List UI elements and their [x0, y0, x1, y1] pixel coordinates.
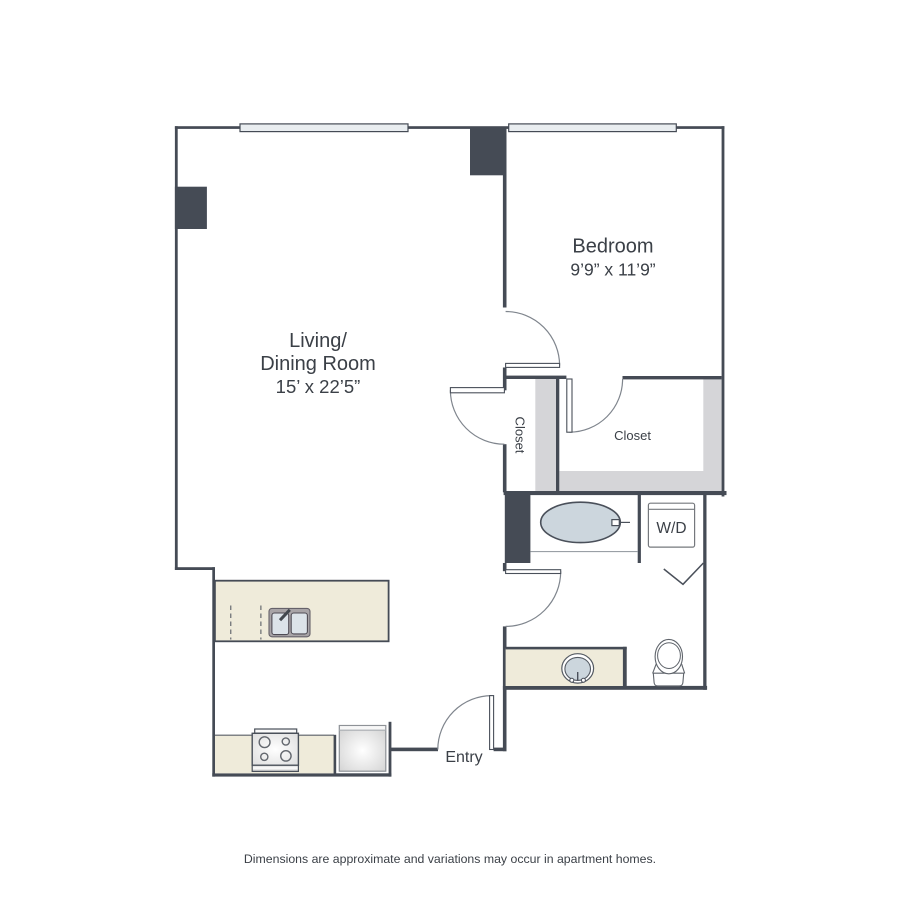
- svg-text:Living/: Living/: [289, 330, 347, 352]
- svg-text:W/D: W/D: [656, 520, 686, 537]
- svg-text:Bedroom: Bedroom: [572, 236, 653, 258]
- svg-text:Closet: Closet: [614, 428, 651, 443]
- svg-text:Entry: Entry: [445, 749, 482, 766]
- svg-text:Closet: Closet: [512, 417, 527, 454]
- svg-text:Dimensions are approximate and: Dimensions are approximate and variation…: [244, 852, 656, 866]
- svg-text:Dining Room: Dining Room: [260, 353, 376, 375]
- svg-text:9’9” x 11’9”: 9’9” x 11’9”: [570, 260, 655, 280]
- svg-text:15’ x 22’5”: 15’ x 22’5”: [276, 376, 361, 397]
